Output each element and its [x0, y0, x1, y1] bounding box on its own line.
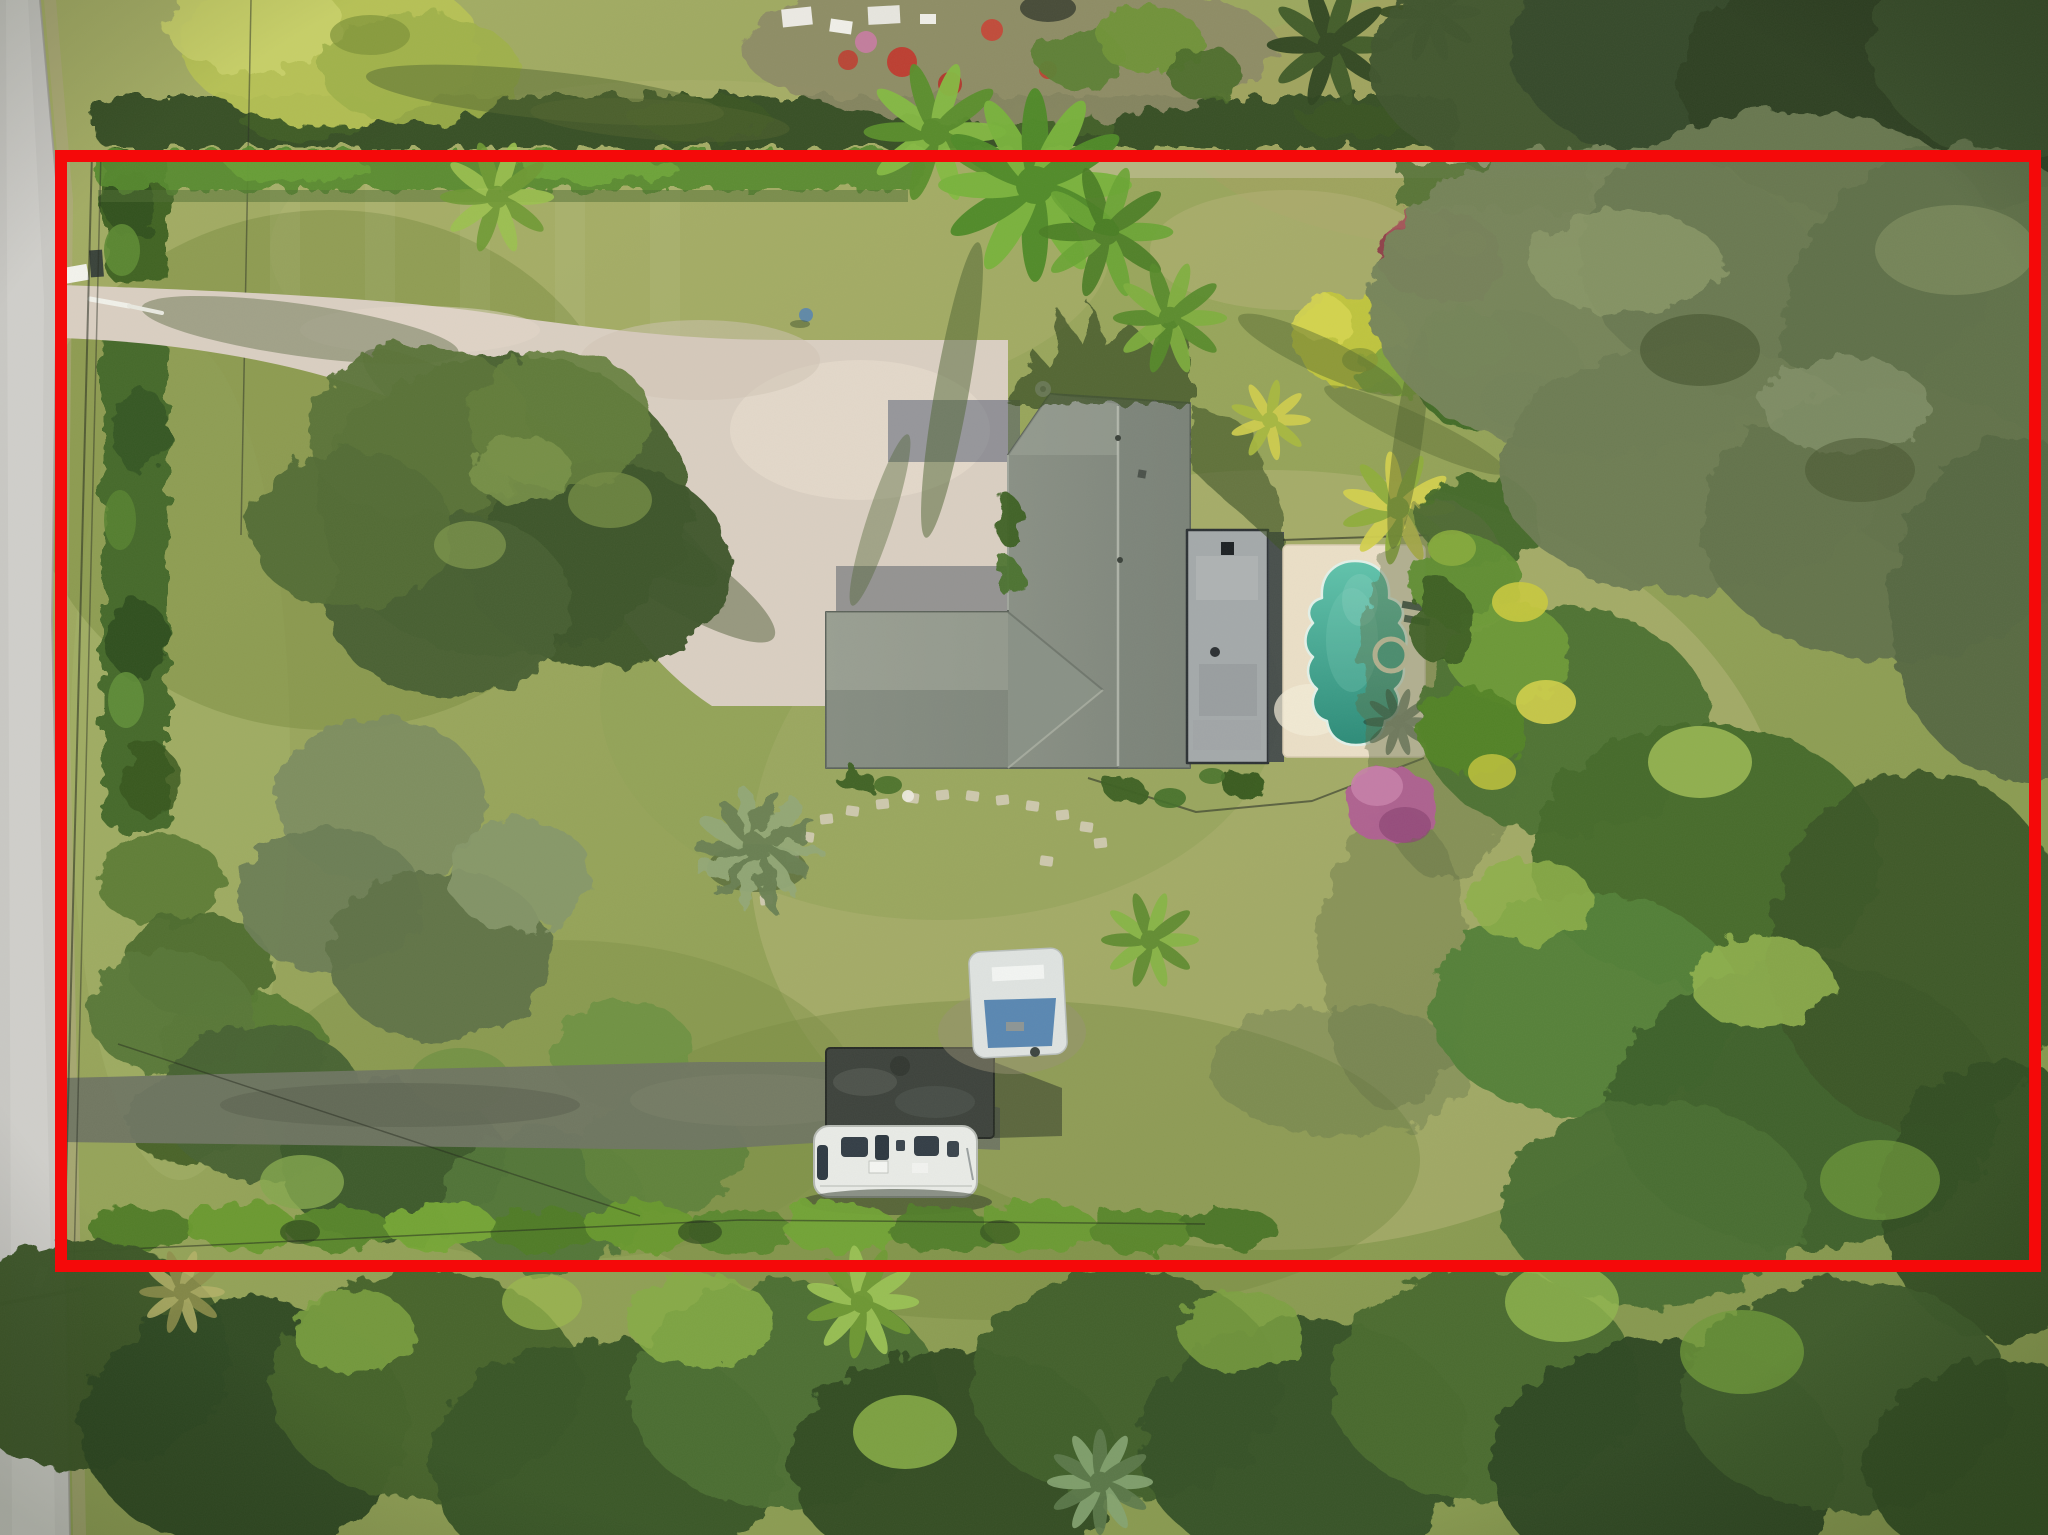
vignette — [0, 0, 2048, 1535]
aerial-photo-svg — [0, 0, 2048, 1535]
aerial-photo — [0, 0, 2048, 1535]
